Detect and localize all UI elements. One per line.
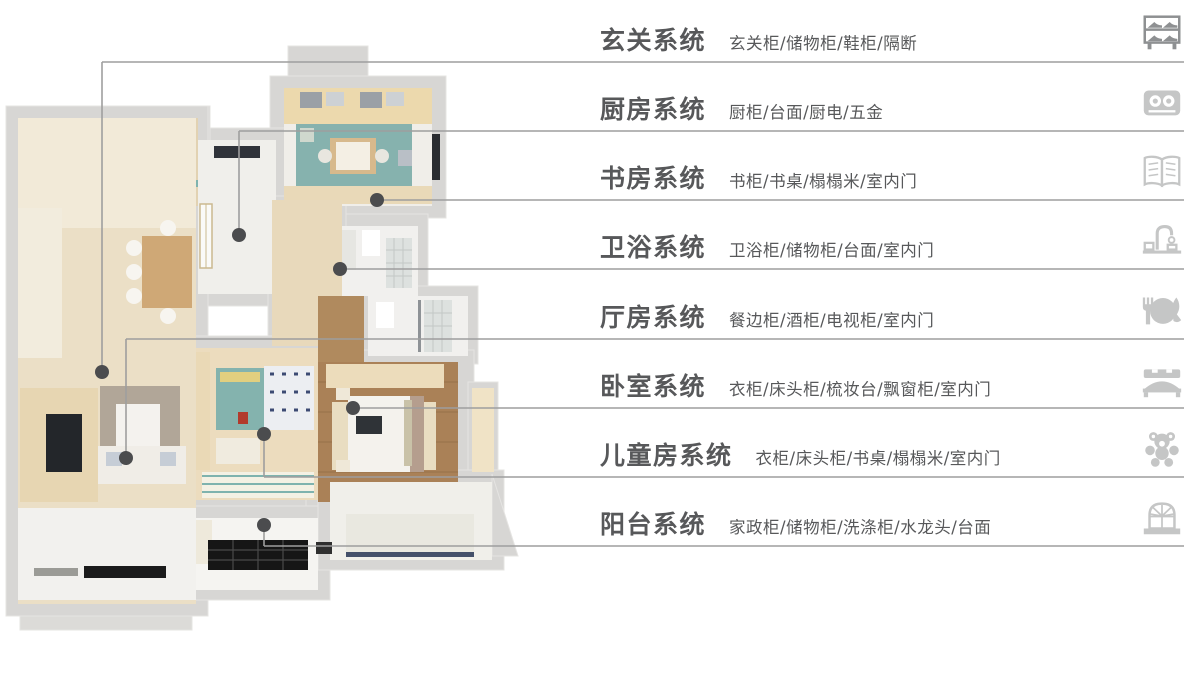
room-marker-dot (257, 518, 271, 532)
system-row-4: 卫浴系统卫浴柜/储物柜/台面/室内门 (600, 221, 1186, 269)
faucet-icon (1138, 217, 1186, 261)
dining-plate-icon (1138, 287, 1186, 331)
system-title: 卧室系统 (600, 374, 706, 408)
system-row-7: 儿童房系统衣柜/床头柜/书桌/榻榻米/室内门 (600, 429, 1186, 477)
bed-icon (1138, 356, 1186, 400)
system-items: 衣柜/床头柜/书桌/榻榻米/室内门 (756, 451, 1001, 478)
room-marker-dot (232, 228, 246, 242)
stove-icon (1138, 79, 1186, 123)
system-row-5: 厅房系统餐边柜/酒柜/电视柜/室内门 (600, 291, 1186, 339)
system-row-8: 阳台系统家政柜/储物柜/洗涤柜/水龙头/台面 (600, 498, 1186, 546)
system-title: 玄关系统 (600, 28, 706, 62)
system-title: 儿童房系统 (600, 443, 733, 477)
system-title: 卫浴系统 (600, 235, 706, 269)
room-marker-dot (346, 401, 360, 415)
system-row-2: 厨房系统厨柜/台面/厨电/五金 (600, 83, 1186, 131)
system-items: 书柜/书桌/榻榻米/室内门 (729, 174, 917, 201)
system-title: 厨房系统 (600, 97, 706, 131)
system-title: 厅房系统 (600, 305, 706, 339)
window-icon (1138, 494, 1186, 538)
system-row-6: 卧室系统衣柜/床头柜/梳妆台/飘窗柜/室内门 (600, 360, 1186, 408)
system-title: 阳台系统 (600, 512, 706, 546)
system-items: 卫浴柜/储物柜/台面/室内门 (729, 243, 934, 270)
room-marker-dot (95, 365, 109, 379)
system-row-3: 书房系统书柜/书桌/榻榻米/室内门 (600, 152, 1186, 200)
system-items: 衣柜/床头柜/梳妆台/飘窗柜/室内门 (729, 382, 991, 409)
room-marker-dot (257, 427, 271, 441)
room-marker-dot (119, 451, 133, 465)
shoe-rack-icon (1138, 10, 1186, 54)
room-marker-dot (333, 262, 347, 276)
system-items: 家政柜/储物柜/洗涤柜/水龙头/台面 (729, 520, 991, 547)
system-items: 玄关柜/储物柜/鞋柜/隔断 (729, 36, 917, 63)
system-items: 餐边柜/酒柜/电视柜/室内门 (729, 313, 934, 340)
system-row-1: 玄关系统玄关柜/储物柜/鞋柜/隔断 (600, 14, 1186, 62)
open-book-icon (1138, 148, 1186, 192)
room-marker-dot (370, 193, 384, 207)
teddy-bear-icon (1138, 425, 1186, 469)
system-items: 厨柜/台面/厨电/五金 (729, 105, 883, 132)
system-title: 书房系统 (600, 166, 706, 200)
infographic-page: 玄关系统玄关柜/储物柜/鞋柜/隔断厨房系统厨柜/台面/厨电/五金书房系统书柜/书… (0, 0, 1200, 678)
